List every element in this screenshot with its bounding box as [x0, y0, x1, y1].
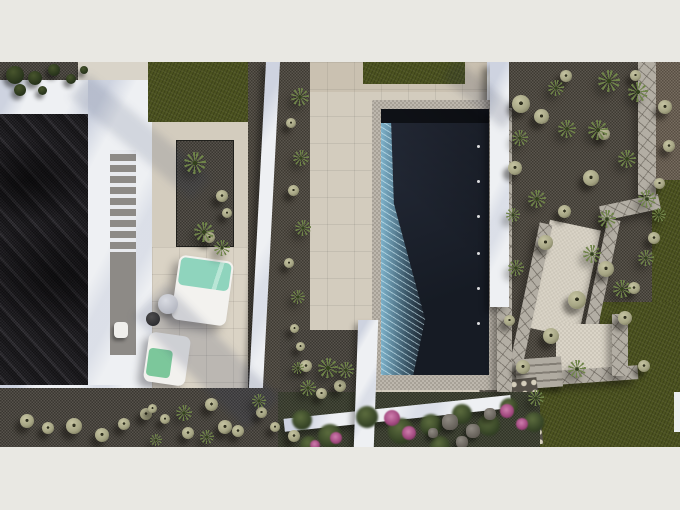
letterbox-top	[0, 0, 680, 62]
pool-jet	[477, 322, 480, 325]
pool-jet	[477, 180, 480, 183]
mint-towel	[178, 257, 232, 292]
roof-channel-opening	[110, 150, 136, 355]
pool-water	[381, 109, 489, 375]
pool-jet	[477, 215, 480, 218]
pool-jet	[477, 145, 480, 148]
flagstone-wall-right	[638, 62, 656, 195]
far-right-gravel	[656, 62, 680, 182]
white-wall-sliver	[674, 392, 680, 432]
aerial-render-scene	[0, 62, 680, 447]
pool-jet-layer	[381, 109, 489, 375]
pool-side-garden-gravel	[280, 330, 360, 392]
lawn-bottom-right	[538, 380, 680, 447]
roof-louver-slats	[110, 150, 136, 252]
render-viewport	[0, 0, 680, 510]
landing-border-right	[612, 314, 628, 376]
pool-jet	[477, 287, 480, 290]
letterbox-bottom	[0, 447, 680, 510]
pool-jet	[477, 252, 480, 255]
lawn-patch-left	[148, 62, 248, 122]
patio-chair	[114, 322, 128, 338]
dark-roof-courtyard	[0, 112, 88, 388]
